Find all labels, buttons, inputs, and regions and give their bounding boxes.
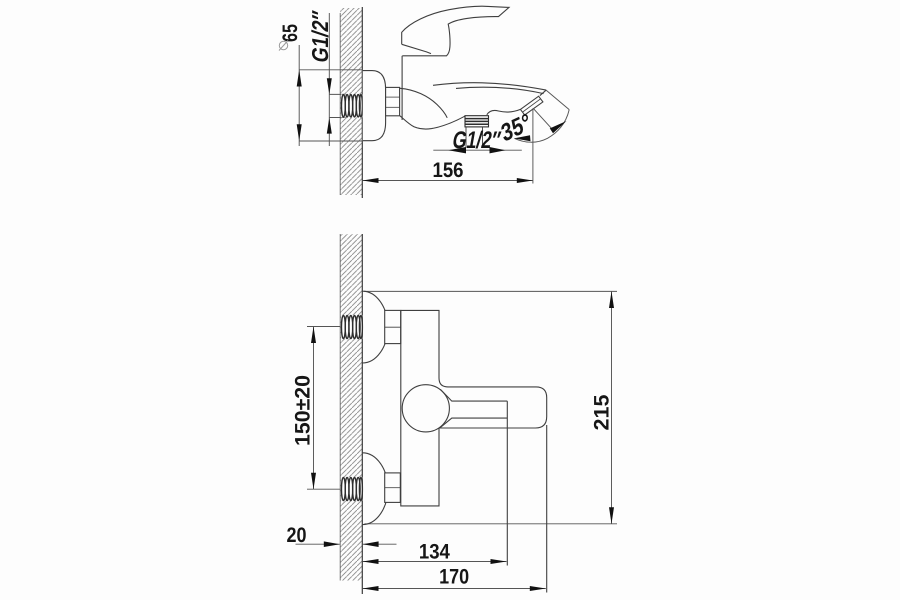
svg-text:65: 65 [279,24,302,42]
svg-text:G1/2″: G1/2″ [450,127,503,154]
svg-text:134: 134 [419,540,450,563]
svg-text:156: 156 [433,159,464,182]
svg-text:215: 215 [591,394,614,430]
svg-text:20: 20 [287,524,307,547]
svg-text:170: 170 [439,565,469,588]
svg-text:150±20: 150±20 [292,375,315,446]
svg-text:G1/2″: G1/2″ [307,9,333,65]
